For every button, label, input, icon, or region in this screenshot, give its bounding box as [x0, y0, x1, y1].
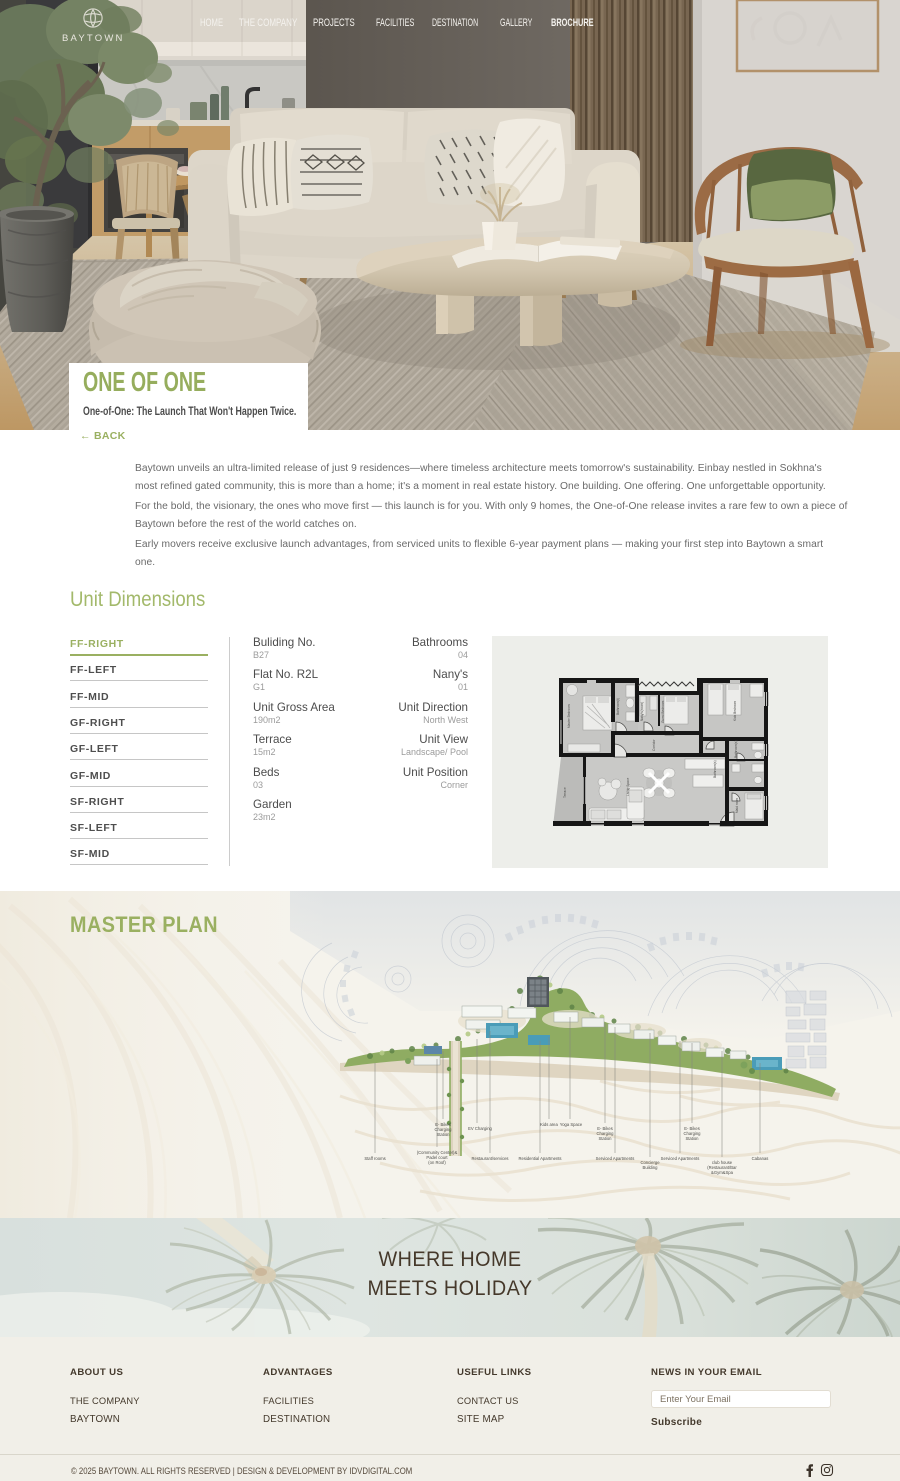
svg-text:Residential Apartments: Residential Apartments: [518, 1156, 561, 1161]
svg-text:Living Space: Living Space: [626, 778, 630, 796]
svg-text:E- BikesChargingStation: E- BikesChargingStation: [435, 1122, 453, 1137]
svg-text:Nany’s(room): Nany’s(room): [640, 702, 644, 721]
svg-text:Serviced Apartments: Serviced Apartments: [661, 1156, 700, 1161]
svg-text:ConciergeBuilding: ConciergeBuilding: [640, 1160, 660, 1170]
svg-text:Staff rooms: Staff rooms: [364, 1156, 385, 1161]
svg-text:Yoga Space: Yoga Space: [560, 1122, 583, 1127]
svg-text:EV Charging: EV Charging: [468, 1126, 492, 1131]
svg-text:Kids area: Kids area: [540, 1122, 558, 1127]
svg-text:Bathroom(s): Bathroom(s): [734, 740, 738, 758]
svg-text:Bathroom(s): Bathroom(s): [713, 760, 717, 778]
svg-text:Serviced Apartments: Serviced Apartments: [596, 1156, 635, 1161]
svg-text:E- BikesChargingStation: E- BikesChargingStation: [597, 1126, 615, 1141]
svg-text:Cabanas: Cabanas: [752, 1156, 769, 1161]
svg-text:Guest Bedroom: Guest Bedroom: [661, 700, 665, 723]
svg-text:Terrace: Terrace: [563, 787, 567, 798]
svg-text:Corridor: Corridor: [652, 739, 656, 751]
svg-text:E- BikesChargingStation: E- BikesChargingStation: [684, 1126, 702, 1141]
svg-text:Bathroom(t): Bathroom(t): [616, 698, 620, 715]
svg-text:Kids Bedroom: Kids Bedroom: [733, 701, 737, 721]
svg-text:Restaurant/services: Restaurant/services: [471, 1156, 508, 1161]
svg-text:Master Bedroom: Master Bedroom: [567, 704, 571, 728]
svg-text:Maid room: Maid room: [735, 798, 739, 813]
